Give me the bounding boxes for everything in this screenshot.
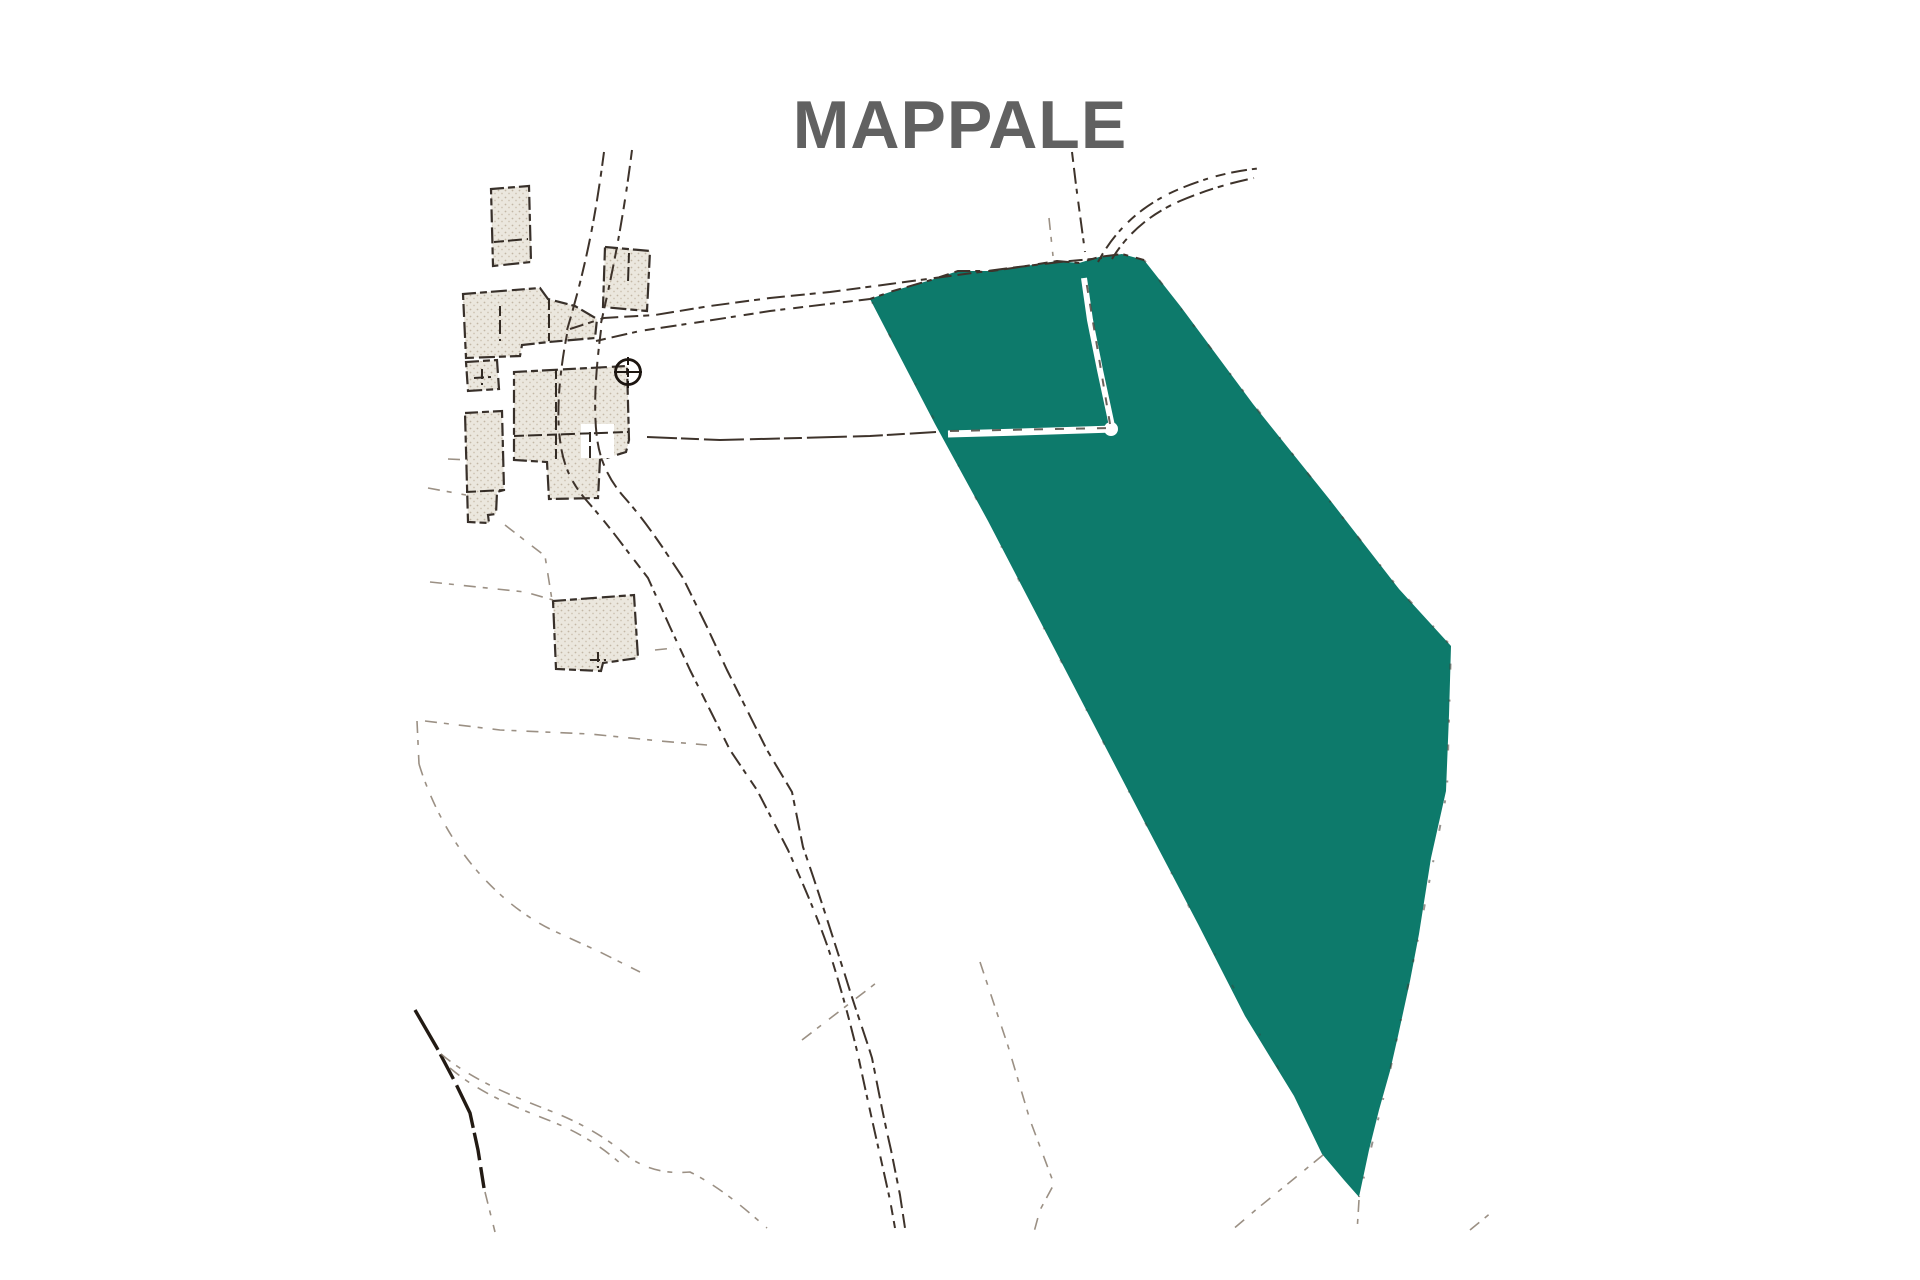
boundary-line xyxy=(1470,1212,1492,1230)
road-edge xyxy=(595,330,905,1228)
village-buildings xyxy=(463,186,650,671)
highlighted-parcel-group xyxy=(870,254,1451,1197)
boundary-line xyxy=(448,459,468,460)
building-division-line xyxy=(628,253,629,282)
building-division-line xyxy=(474,377,491,378)
road-edge xyxy=(567,152,604,330)
road-edge xyxy=(558,334,895,1228)
building-courtyard xyxy=(581,424,614,458)
boundary-line xyxy=(647,432,936,440)
boundary-line xyxy=(485,1192,495,1232)
boundary-line xyxy=(430,582,553,600)
boundary-line xyxy=(441,1054,767,1228)
parcel-inner-line-corner xyxy=(1104,422,1118,436)
boundary-line xyxy=(655,648,674,650)
boundary-line xyxy=(1357,1200,1359,1232)
boundary-line xyxy=(419,764,640,972)
cadastral-map xyxy=(0,0,1920,1280)
boundary-line-heavy xyxy=(415,1010,484,1188)
boundary-line xyxy=(505,525,552,600)
boundary-line xyxy=(1072,152,1085,252)
boundary-line xyxy=(417,721,419,764)
page: MAPPALE xyxy=(0,0,1920,1280)
boundary-line xyxy=(1049,218,1053,256)
building xyxy=(491,186,531,266)
boundary-line xyxy=(1232,1155,1323,1230)
boundary-line xyxy=(450,1068,622,1165)
building xyxy=(465,411,504,523)
highlighted-parcel xyxy=(870,254,1451,1197)
boundary-line xyxy=(425,721,707,745)
boundary-line xyxy=(428,488,466,495)
boundary-line xyxy=(980,962,1054,1232)
